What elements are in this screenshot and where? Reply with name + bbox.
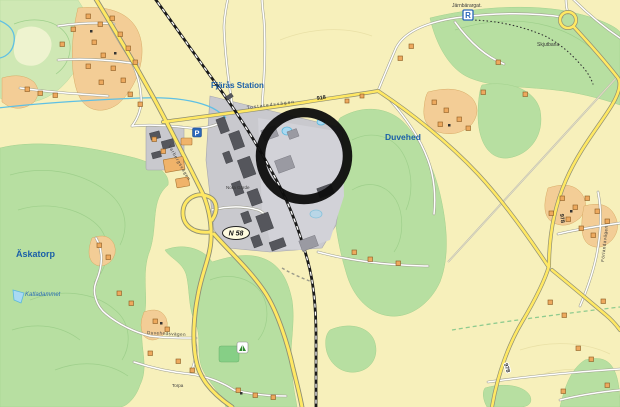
road-number-978-upper: 978 — [558, 214, 565, 224]
parking-icon-label: P — [194, 128, 199, 137]
label-duvehed: Duvehed — [385, 132, 421, 142]
pond — [310, 210, 322, 218]
n58-road-badge: N 58 — [223, 227, 250, 240]
label-jarnbarargat: Järnbärargat. — [452, 3, 482, 9]
map-canvas[interactable]: N 58 P R Tostaredsvägen 918 Varbergsväge… — [0, 0, 620, 407]
rest-area-icon: R — [463, 10, 473, 20]
label-torpa: Torpa — [172, 383, 184, 388]
parking-icon: P — [193, 128, 202, 137]
label-nora-garde: Nora Gärde — [226, 185, 250, 190]
map-svg: N 58 P R Tostaredsvägen 918 Varbergsväge… — [0, 0, 620, 407]
label-katladammet: Katladammet — [25, 292, 61, 298]
label-skjutbana: Skjutbana — [537, 42, 559, 48]
camping-icon — [237, 342, 248, 353]
label-fjaras-station: Fjärås Station — [211, 81, 264, 90]
rest-area-icon-label: R — [465, 11, 471, 20]
road-number-918: 918 — [316, 95, 326, 102]
n58-badge-label: N 58 — [229, 231, 244, 238]
label-askatorp: Äskatorp — [16, 249, 56, 259]
